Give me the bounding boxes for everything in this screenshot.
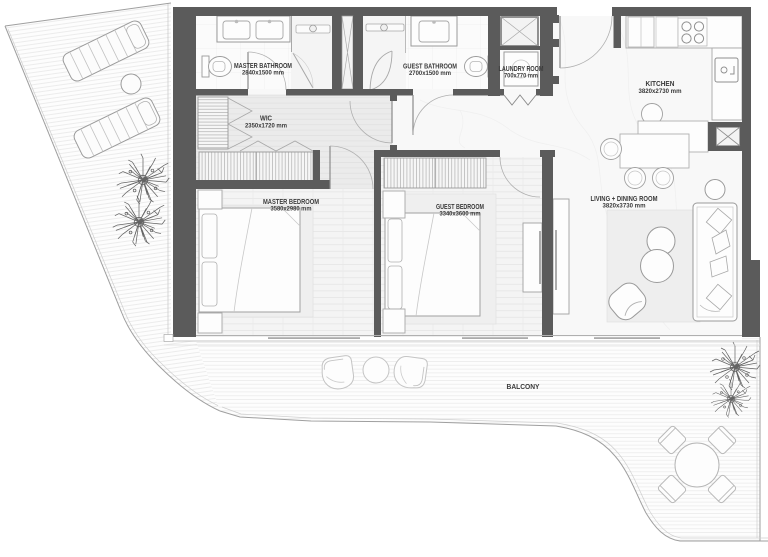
svg-text:3820x2730 mm: 3820x2730 mm: [639, 88, 682, 95]
svg-text:KITCHEN: KITCHEN: [646, 81, 675, 88]
svg-text:WIC: WIC: [260, 116, 272, 123]
svg-text:2840x1500 mm: 2840x1500 mm: [242, 70, 284, 77]
svg-text:3820x3730 mm: 3820x3730 mm: [603, 203, 646, 210]
svg-text:3340x3600 mm: 3340x3600 mm: [440, 211, 481, 218]
svg-text:2700x1500 mm: 2700x1500 mm: [409, 70, 451, 77]
svg-text:700x770 mm: 700x770 mm: [504, 73, 538, 80]
svg-text:2350x1720 mm: 2350x1720 mm: [245, 123, 287, 130]
svg-text:BALCONY: BALCONY: [507, 384, 540, 391]
svg-text:3580x2980 mm: 3580x2980 mm: [271, 206, 312, 213]
